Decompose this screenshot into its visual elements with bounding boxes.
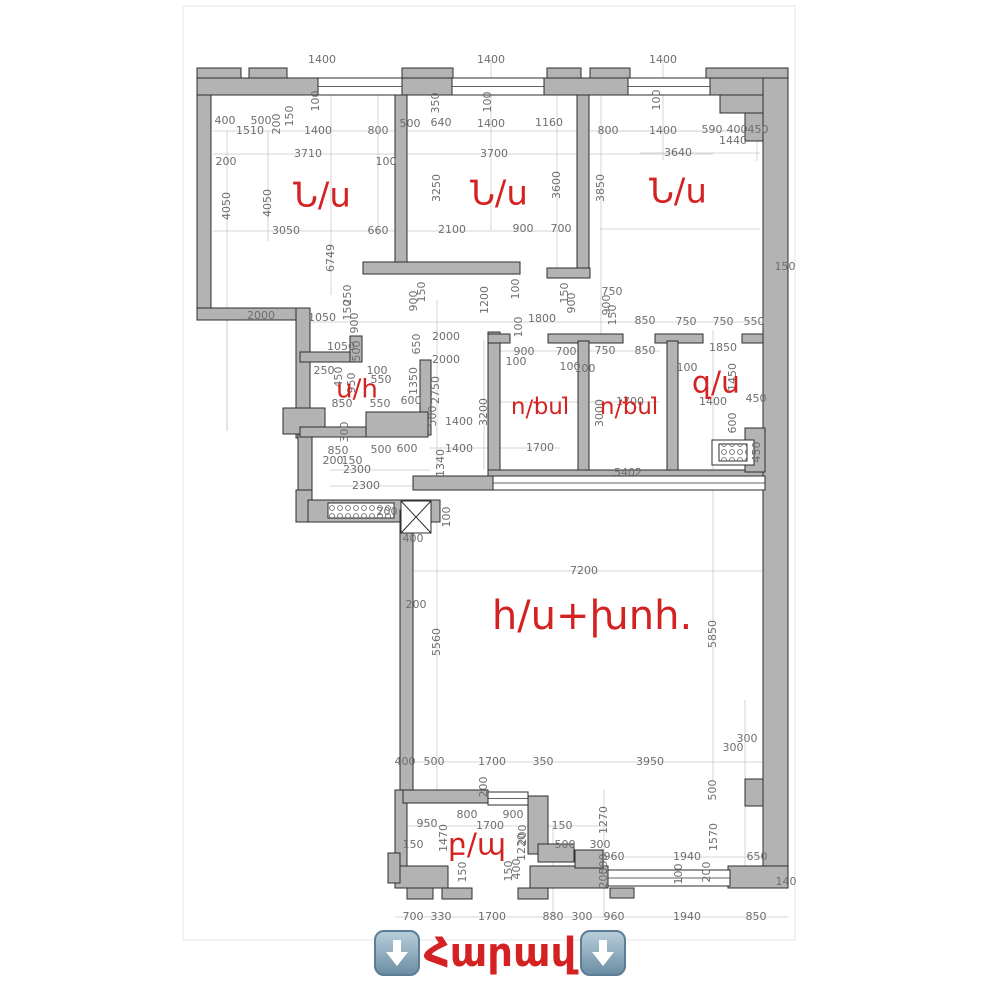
dimension-label: 900: [513, 222, 534, 235]
dimension-label: 900: [503, 808, 524, 821]
dimension-label: 150: [415, 282, 428, 303]
dimension-label: 2300: [343, 463, 371, 476]
dimension-label: 3850: [594, 174, 607, 202]
dimension-label: 2300: [352, 479, 380, 492]
dimension-label: 2000: [247, 309, 275, 322]
wall: [720, 95, 763, 113]
dimension-label: 3050: [272, 224, 300, 237]
dimension-label: 700: [403, 910, 424, 923]
dimension-label: 200: [270, 114, 283, 135]
dimension-label: 850: [635, 314, 656, 327]
dimension-label: 850: [746, 910, 767, 923]
dimension-label: 100: [672, 864, 685, 885]
dimension-label: 2000: [432, 330, 460, 343]
dimension-label: 4050: [220, 192, 233, 220]
dimension-label: 3200: [477, 398, 490, 426]
dimension-label: 350: [533, 755, 554, 768]
dimension-label: 500: [350, 341, 363, 362]
wall: [300, 427, 366, 437]
dimension-label: 100: [506, 355, 527, 368]
dimension-label: 150: [456, 862, 469, 883]
dimension-label: 600: [397, 442, 418, 455]
dimension-label: 800: [598, 124, 619, 137]
wall: [442, 888, 472, 899]
dimension-label: 150: [606, 305, 619, 326]
dimension-label: 500: [424, 755, 445, 768]
room-label: Ն/ս: [649, 172, 707, 212]
wall: [403, 790, 488, 803]
dimension-label: 500: [371, 443, 392, 456]
dimension-label: 6749: [324, 244, 337, 272]
dimension-label: 500: [555, 838, 576, 851]
dimension-label: 100: [512, 317, 525, 338]
room-label: Ն/ս: [293, 176, 351, 216]
dimension-label: 1700: [526, 441, 554, 454]
down-arrow-icon: [580, 930, 626, 976]
down-arrow-head: [592, 952, 614, 966]
dimension-label: 1850: [709, 341, 737, 354]
dimension-label: 2100: [438, 223, 466, 236]
dimension-label: 100: [481, 92, 494, 113]
dimension-label: 700: [556, 345, 577, 358]
dimension-label: 150: [403, 838, 424, 851]
room-label: բ/պ: [448, 828, 506, 863]
dimension-label: 400: [403, 532, 424, 545]
wall: [400, 510, 413, 792]
dimension-label: 640: [431, 116, 452, 129]
dimension-label: 450: [748, 123, 769, 136]
dimension-label: 1400: [477, 117, 505, 130]
dimension-label: 100: [309, 91, 322, 112]
dimension-label: 5850: [706, 620, 719, 648]
wall: [366, 412, 428, 437]
dimension-label: 1440: [719, 134, 747, 147]
dimension-label: 200: [406, 598, 427, 611]
dimension-label: 400: [395, 755, 416, 768]
dimension-label: 750: [595, 344, 616, 357]
dimension-label: 350: [429, 93, 442, 114]
dimension-label: 750: [713, 315, 734, 328]
dimension-label: 200: [323, 454, 344, 467]
dimension-label: 4050: [261, 189, 274, 217]
wall: [610, 888, 634, 898]
dimension-label: 200: [597, 868, 610, 889]
dimension-label: 150: [502, 861, 515, 882]
dimension-label: 450: [746, 392, 767, 405]
caption-text: Հարավ: [424, 933, 577, 973]
floor-plan: 1400140014001004005001510200150140080037…: [0, 0, 1000, 1000]
dimension-label: 300: [572, 910, 593, 923]
wall: [742, 334, 765, 343]
wall: [413, 476, 493, 490]
dimension-label: 850: [635, 344, 656, 357]
dimension-label: 1940: [673, 910, 701, 923]
dimension-label: 900: [565, 293, 578, 314]
dimension-label: 800: [368, 124, 389, 137]
dimension-label: 1270: [597, 806, 610, 834]
dimension-label: 500: [706, 780, 719, 801]
dimension-label: 800: [457, 808, 478, 821]
wall: [518, 888, 548, 899]
dimension-label: 1340: [434, 449, 447, 477]
dimension-label: 450: [750, 442, 763, 463]
room-label: լոգ/ս: [600, 396, 658, 422]
dimension-label: 1800: [528, 312, 556, 325]
dimension-label: 1700: [478, 755, 506, 768]
dimension-label: 200: [477, 777, 490, 798]
dimension-label: 5402: [614, 466, 642, 479]
wall: [745, 779, 763, 806]
room-label: Ն/ս: [470, 174, 528, 214]
wall: [197, 95, 211, 316]
dimension-label: 650: [747, 850, 768, 863]
dimension-label: 500: [426, 406, 439, 427]
dimension-label: 600: [401, 394, 422, 407]
dimension-label: 960: [604, 910, 625, 923]
wall: [363, 262, 520, 274]
wall: [577, 95, 589, 268]
dimension-label: 1200: [478, 286, 491, 314]
dimension-label: 750: [676, 315, 697, 328]
dimension-label: 1400: [445, 415, 473, 428]
dimension-label: 1350: [407, 367, 420, 395]
dimension-label: 150: [283, 106, 296, 127]
room-label: զ/ս: [692, 366, 740, 401]
dimension-label: 400: [215, 114, 236, 127]
dimension-label: 650: [410, 334, 423, 355]
dimension-label: 2000: [432, 353, 460, 366]
dimension-label: 950: [417, 817, 438, 830]
dimension-label: 1400: [649, 124, 677, 137]
dimension-label: 550: [744, 315, 765, 328]
wall: [655, 334, 703, 343]
dimension-label: 200: [700, 862, 713, 883]
dimension-label: 1940: [673, 850, 701, 863]
dimension-label: 1050: [308, 311, 336, 324]
wall: [388, 853, 400, 883]
dimension-label: 1510: [236, 124, 264, 137]
dimension-label: 100: [440, 507, 453, 528]
dimension-label: 3700: [480, 147, 508, 160]
dimension-label: 150: [552, 819, 573, 832]
wall: [547, 268, 590, 278]
dimension-label: 1160: [535, 116, 563, 129]
dimension-label: 600: [726, 413, 739, 434]
dimension-label: 660: [368, 224, 389, 237]
dimension-label: 1400: [308, 53, 336, 66]
dimension-label: 880: [543, 910, 564, 923]
dimension-label: 200: [377, 505, 398, 518]
down-arrow-icon: [374, 930, 420, 976]
dimension-label: 300: [723, 741, 744, 754]
dimension-label: 500: [400, 117, 421, 130]
wall: [395, 866, 448, 888]
dimension-label: 5560: [430, 628, 443, 656]
hatch-pattern: [719, 444, 747, 461]
wall: [763, 78, 788, 888]
dimension-label: 1400: [304, 124, 332, 137]
dimension-label: 3710: [294, 147, 322, 160]
dimension-label: 3250: [430, 174, 443, 202]
dimension-label: 1570: [707, 823, 720, 851]
dimension-label: 1220: [515, 833, 528, 861]
room-label: ս/հ: [336, 375, 378, 405]
dimension-label: 3950: [636, 755, 664, 768]
dimension-label: 150: [775, 260, 796, 273]
dimension-label: 100: [509, 279, 522, 300]
dimension-label: 1400: [445, 442, 473, 455]
dimension-label: 1700: [478, 910, 506, 923]
room-label: հ/ս+խոհ.: [492, 593, 692, 639]
dimension-label: 100: [376, 155, 397, 168]
caption: Հարավ: [0, 930, 1000, 976]
dimension-label: 300: [338, 422, 351, 443]
dimension-label: 100: [575, 362, 596, 375]
dimension-label: 140: [776, 875, 797, 888]
dimension-label: 7200: [570, 564, 598, 577]
dimension-label: 2750: [429, 376, 442, 404]
dimension-label: 3600: [550, 171, 563, 199]
dimension-label: 200: [216, 155, 237, 168]
down-arrow-head: [386, 952, 408, 966]
dimension-label: 1400: [477, 53, 505, 66]
dimension-label: 3640: [664, 146, 692, 159]
dimension-label: 100: [650, 90, 663, 111]
dimension-label: 1400: [649, 53, 677, 66]
wall: [407, 888, 433, 899]
dimension-label: 900: [348, 313, 361, 334]
room-label: լոգ/ս: [511, 396, 569, 422]
dimension-label: 330: [431, 910, 452, 923]
dimension-label: 700: [551, 222, 572, 235]
wall: [488, 334, 510, 343]
